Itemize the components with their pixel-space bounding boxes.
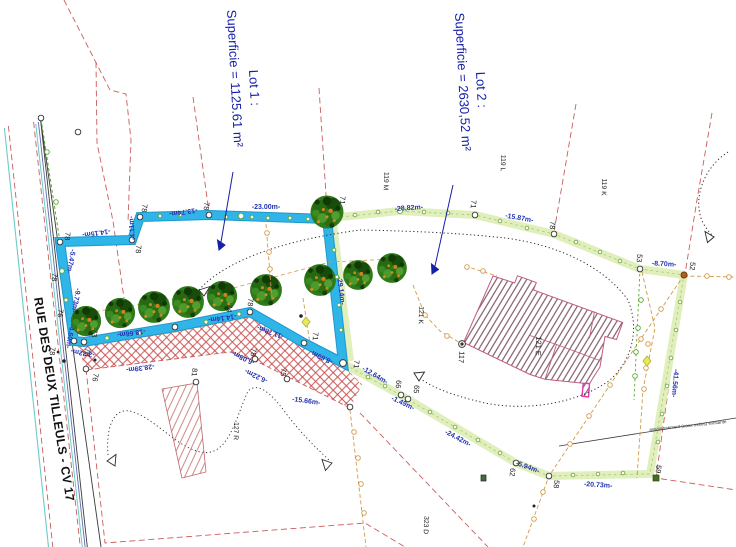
svg-text:78: 78 xyxy=(246,298,256,307)
svg-text:76: 76 xyxy=(90,373,100,383)
svg-text:52: 52 xyxy=(688,262,698,271)
svg-text:78: 78 xyxy=(63,232,73,241)
svg-text:78: 78 xyxy=(48,347,58,356)
svg-text:66: 66 xyxy=(394,380,404,389)
svg-text:-23.00m-: -23.00m- xyxy=(252,204,281,211)
svg-text:75: 75 xyxy=(279,368,289,377)
svg-text:78: 78 xyxy=(83,348,93,357)
svg-text:78: 78 xyxy=(134,245,144,254)
svg-text:121 K: 121 K xyxy=(417,306,425,324)
svg-text:71: 71 xyxy=(338,196,348,205)
svg-text:71: 71 xyxy=(311,332,321,341)
svg-text:Lot 2 :: Lot 2 : xyxy=(473,71,490,108)
svg-text:78: 78 xyxy=(249,348,259,357)
svg-text:76: 76 xyxy=(56,309,66,318)
svg-text:119 M: 119 M xyxy=(382,172,390,191)
svg-text:119 L: 119 L xyxy=(499,155,507,172)
svg-text:58: 58 xyxy=(552,480,562,489)
svg-text:59: 59 xyxy=(654,465,664,474)
svg-text:65: 65 xyxy=(412,385,422,394)
svg-text:71: 71 xyxy=(352,360,362,369)
svg-text:117: 117 xyxy=(456,351,466,364)
svg-text:81: 81 xyxy=(190,368,200,377)
svg-text:78: 78 xyxy=(548,221,558,230)
svg-text:53: 53 xyxy=(635,254,645,263)
svg-text:127 R: 127 R xyxy=(232,422,240,440)
svg-text:-8.70m-: -8.70m- xyxy=(652,260,678,268)
svg-text:78: 78 xyxy=(50,273,60,282)
svg-text:62: 62 xyxy=(508,468,518,477)
svg-text:78: 78 xyxy=(202,202,212,211)
svg-text:73: 73 xyxy=(90,329,100,338)
svg-text:323 D: 323 D xyxy=(422,516,430,534)
svg-text:Lot 1 :: Lot 1 : xyxy=(246,69,263,106)
svg-text:121 E: 121 E xyxy=(534,336,544,356)
svg-text:78: 78 xyxy=(140,204,150,213)
svg-text:74: 74 xyxy=(225,304,235,313)
svg-text:119 K: 119 K xyxy=(600,178,608,196)
svg-text:71: 71 xyxy=(469,200,479,209)
